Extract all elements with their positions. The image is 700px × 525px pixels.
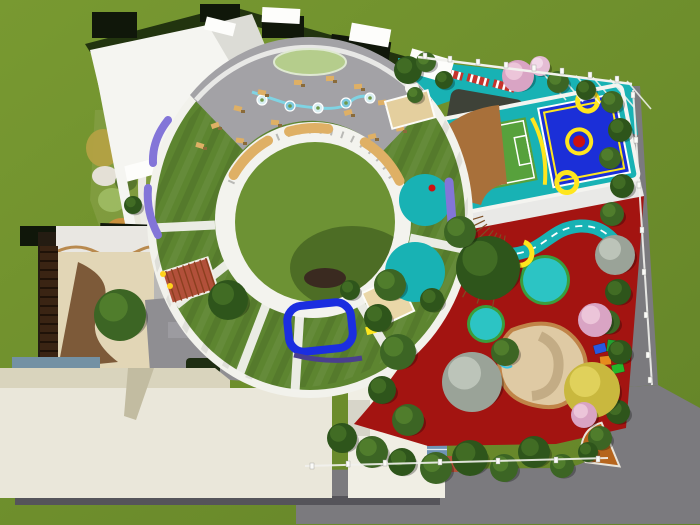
terrace-garden-island xyxy=(274,49,346,75)
courtyard-planting-bed xyxy=(304,268,346,288)
dark-roof-1 xyxy=(92,12,137,38)
aerial-site-rendering xyxy=(0,0,700,525)
rim-roof-box-2 xyxy=(262,7,301,24)
play-ball xyxy=(429,185,436,192)
east-purple-slide xyxy=(449,182,452,222)
scene-svg xyxy=(0,0,700,525)
main-roof xyxy=(0,388,332,498)
teal-pocket-north xyxy=(399,174,451,226)
